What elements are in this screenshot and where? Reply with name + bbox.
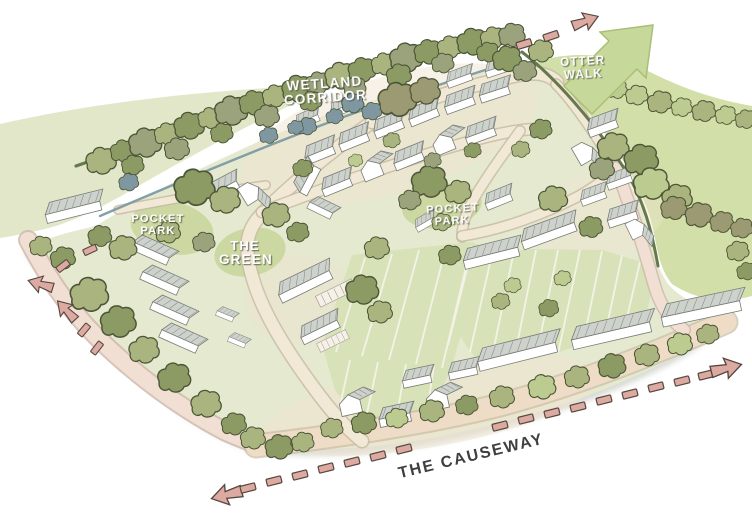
label-pocket-park-west-line1: POCKET: [131, 213, 184, 225]
label-otter-walk-line1: OTTER: [560, 55, 606, 69]
label-otter-walk-line2: WALK: [564, 68, 603, 82]
label-pocket-park-west-line2: PARK: [140, 225, 175, 237]
label-pocket-park-central-line2: PARK: [434, 214, 470, 228]
masterplan-canvas: WETLAND CORRIDOR OTTER WALK POCKET PARK …: [0, 0, 752, 515]
masterplan-illustration: WETLAND CORRIDOR OTTER WALK POCKET PARK …: [0, 0, 752, 515]
label-the-green-line2: GREEN: [219, 252, 273, 267]
label-the-green-line1: THE: [230, 238, 260, 253]
route-arrow-northeast: [516, 8, 602, 50]
